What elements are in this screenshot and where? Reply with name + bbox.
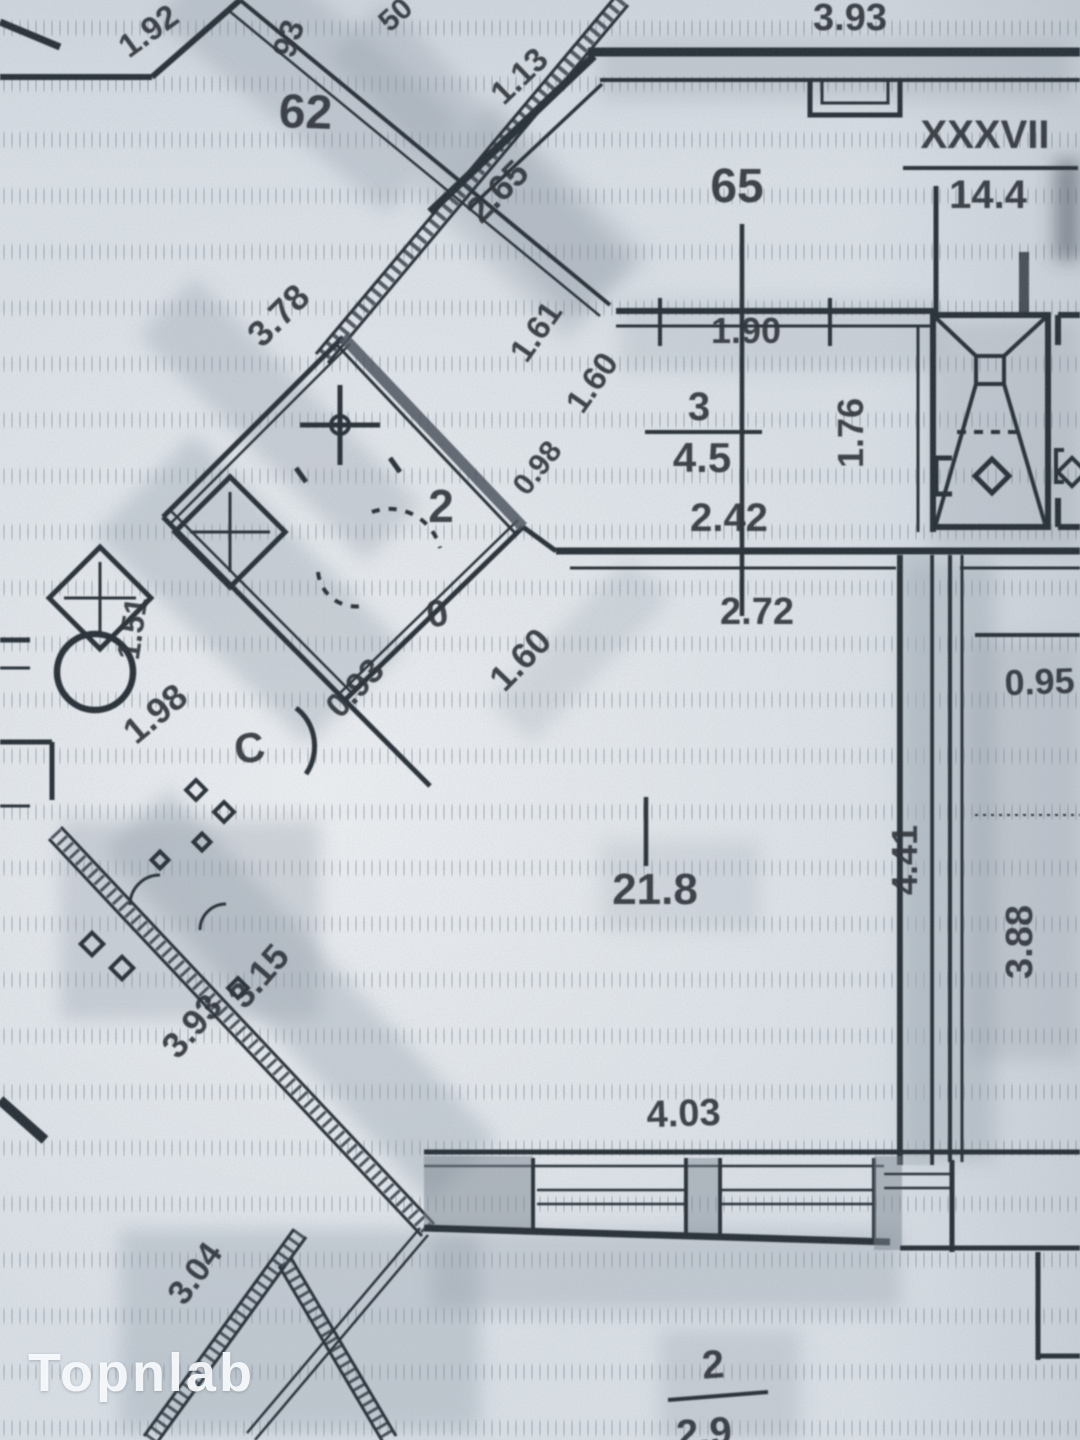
paper-grain-overlay [0, 0, 1080, 1440]
floor-plan-photo: 1.92 93 50 62 1.13 2.65 3.93 65 XXXVII 1… [0, 0, 1080, 1440]
watermark-logo: Topnlab [28, 1342, 255, 1404]
floor-plan-drawing: 1.92 93 50 62 1.13 2.65 3.93 65 XXXVII 1… [0, 0, 1080, 1440]
